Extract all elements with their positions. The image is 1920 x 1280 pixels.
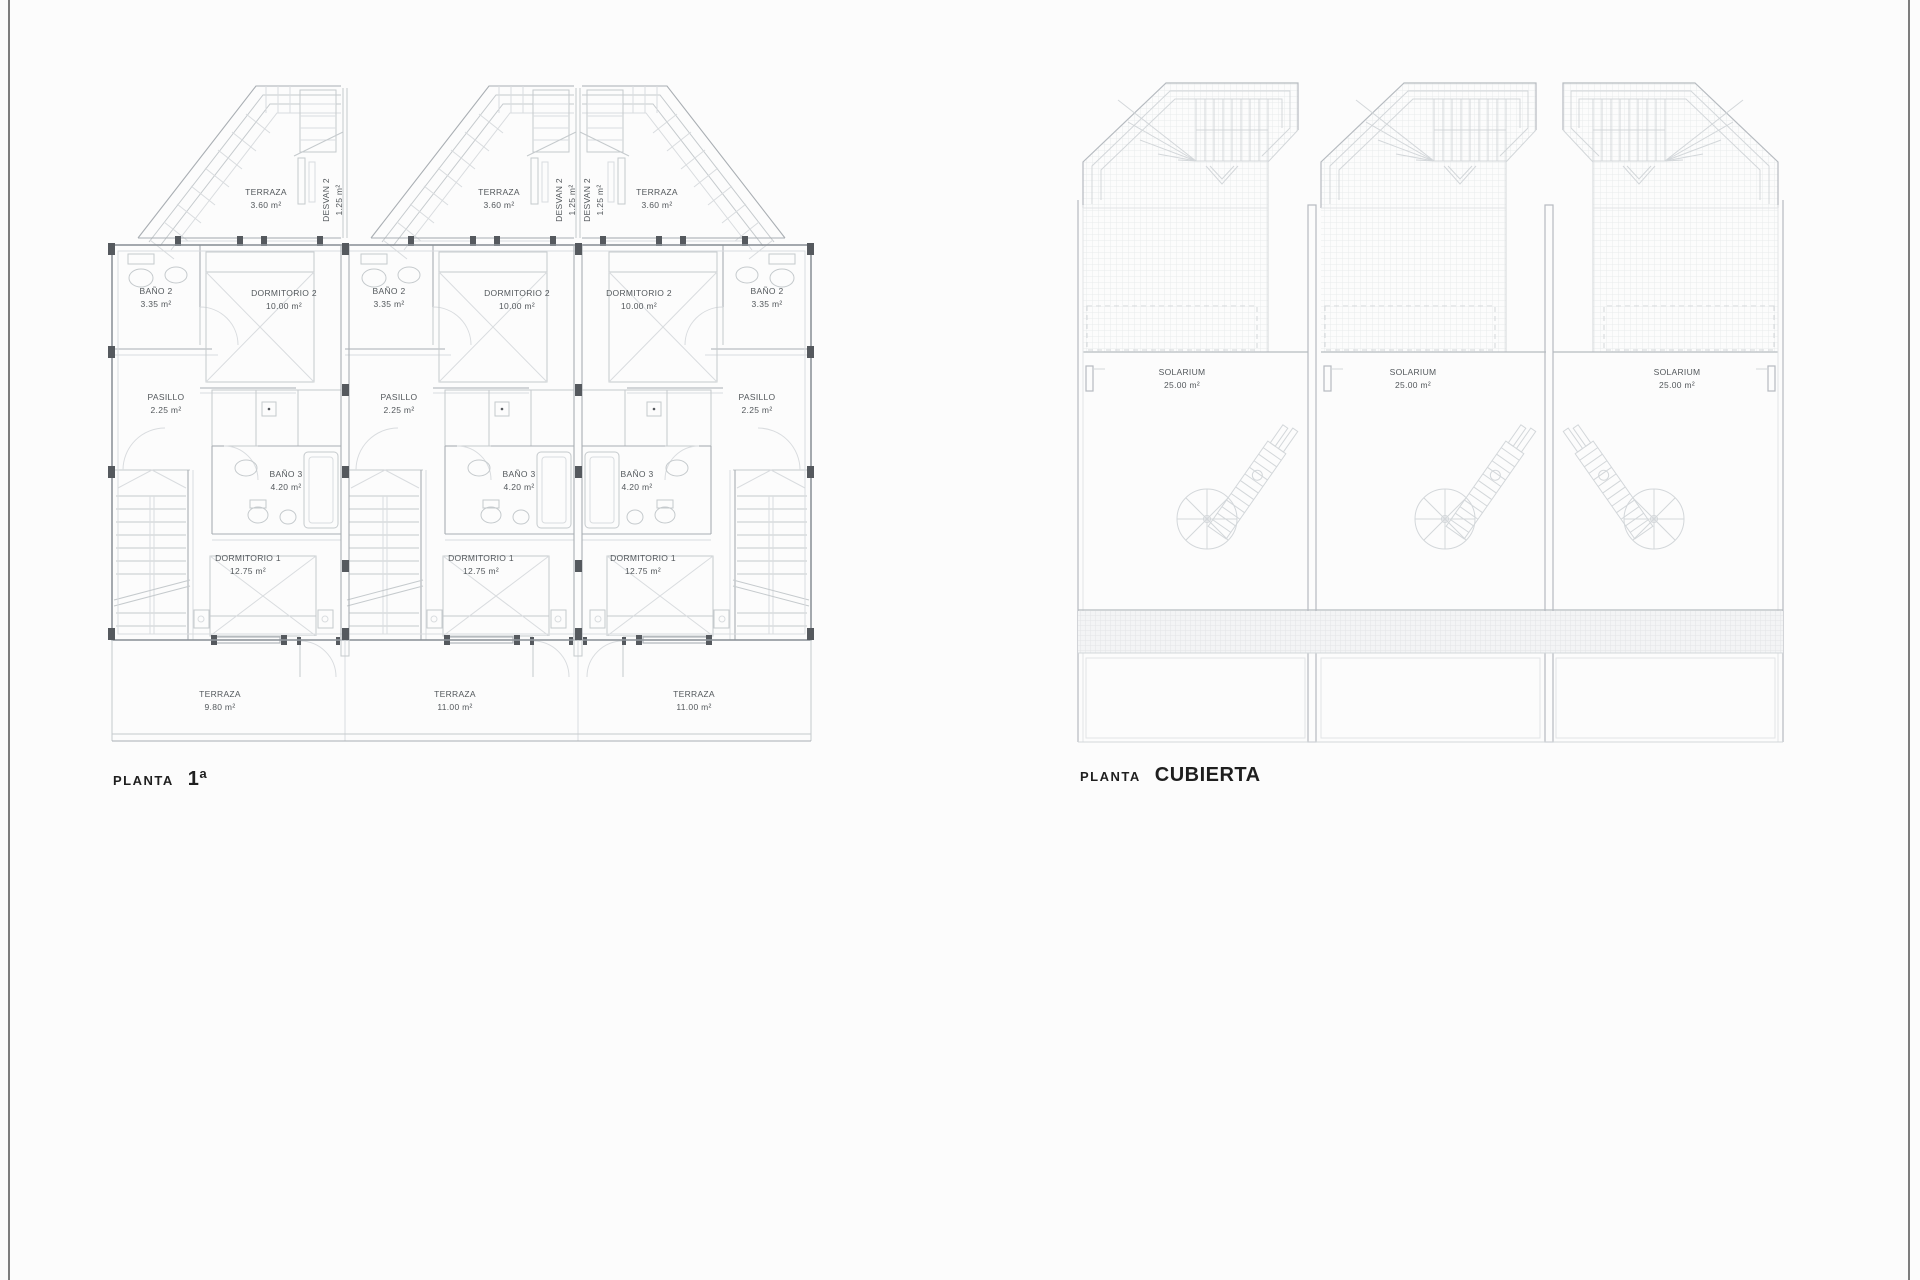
room-area: 11.00 m² (673, 701, 715, 714)
room-area: 3.35 m² (751, 298, 784, 311)
room-name: TERRAZA (199, 688, 241, 701)
room-name: TERRAZA (636, 186, 678, 199)
room-name: BAÑO 2 (373, 285, 406, 298)
room-area: 4.20 m² (270, 481, 303, 494)
room-area: 3.35 m² (140, 298, 173, 311)
label-unit2-bano2: BAÑO 2 3.35 m² (373, 285, 406, 311)
room-name: DESVAN 2 (320, 178, 333, 222)
plan2-title-prefix: PLANTA (1080, 769, 1141, 784)
room-area: 1.25 m² (594, 178, 607, 222)
room-area: 10.00 m² (606, 300, 672, 313)
label-roof-unit2-solarium: SOLARIUM 25.00 m² (1390, 366, 1437, 392)
label-unit2-pasillo: PASILLO 2.25 m² (381, 391, 418, 417)
label-roof-unit1-solarium: SOLARIUM 25.00 m² (1159, 366, 1206, 392)
label-unit3-bano3: BAÑO 3 4.20 m² (621, 468, 654, 494)
room-area: 1.25 m² (333, 178, 346, 222)
room-name: SOLARIUM (1654, 366, 1701, 379)
label-unit2-terraza: TERRAZA 11.00 m² (434, 688, 476, 714)
room-area: 4.20 m² (621, 481, 654, 494)
room-name: PASILLO (148, 391, 185, 404)
room-name: TERRAZA (434, 688, 476, 701)
room-name: BAÑO 3 (503, 468, 536, 481)
label-unit1-bano3: BAÑO 3 4.20 m² (270, 468, 303, 494)
floorplan-linework (0, 0, 1920, 1280)
label-roof-unit3-solarium: SOLARIUM 25.00 m² (1654, 366, 1701, 392)
room-name: BAÑO 3 (270, 468, 303, 481)
label-unit3-terraza-attic: TERRAZA 3.60 m² (636, 186, 678, 212)
room-area: 3.60 m² (478, 199, 520, 212)
label-unit1-terraza: TERRAZA 9.80 m² (199, 688, 241, 714)
room-name: DESVAN 2 (581, 178, 594, 222)
label-unit2-terraza-attic: TERRAZA 3.60 m² (478, 186, 520, 212)
room-area: 12.75 m² (448, 565, 514, 578)
plan1-title-prefix: PLANTA (113, 773, 174, 788)
room-name: TERRAZA (478, 186, 520, 199)
room-name: PASILLO (381, 391, 418, 404)
room-name: PASILLO (739, 391, 776, 404)
room-name: DORMITORIO 2 (606, 287, 672, 300)
room-area: 25.00 m² (1654, 379, 1701, 392)
room-name: DORMITORIO 2 (251, 287, 317, 300)
room-area: 1.25 m² (566, 178, 579, 222)
room-area: 2.25 m² (148, 404, 185, 417)
label-unit3-terraza: TERRAZA 11.00 m² (673, 688, 715, 714)
plan2-title: PLANTA CUBIERTA (1080, 764, 1261, 787)
label-unit1-dormitorio2: DORMITORIO 2 10.00 m² (251, 287, 317, 313)
room-name: DESVAN 2 (553, 178, 566, 222)
room-area: 25.00 m² (1159, 379, 1206, 392)
room-name: BAÑO 2 (140, 285, 173, 298)
plan1-units (112, 86, 811, 677)
room-area: 25.00 m² (1390, 379, 1437, 392)
room-area: 2.25 m² (739, 404, 776, 417)
room-area: 11.00 m² (434, 701, 476, 714)
label-unit3-bano2: BAÑO 2 3.35 m² (751, 285, 784, 311)
room-area: 12.75 m² (215, 565, 281, 578)
plan1-title-value: 1ª (188, 768, 208, 791)
room-area: 3.35 m² (373, 298, 406, 311)
room-area: 9.80 m² (199, 701, 241, 714)
label-unit1-pasillo: PASILLO 2.25 m² (148, 391, 185, 417)
room-area: 4.20 m² (503, 481, 536, 494)
label-unit3-dormitorio1: DORMITORIO 1 12.75 m² (610, 552, 676, 578)
plan2-units (1083, 83, 1778, 549)
room-area: 3.60 m² (245, 199, 287, 212)
room-name: TERRAZA (245, 186, 287, 199)
label-unit2-dormitorio1: DORMITORIO 1 12.75 m² (448, 552, 514, 578)
room-name: DORMITORIO 1 (610, 552, 676, 565)
room-area: 10.00 m² (484, 300, 550, 313)
room-name: DORMITORIO 2 (484, 287, 550, 300)
room-area: 12.75 m² (610, 565, 676, 578)
label-unit3-desvan: DESVAN 2 1.25 m² (581, 178, 607, 222)
room-name: DORMITORIO 1 (448, 552, 514, 565)
plan2-title-value: CUBIERTA (1155, 764, 1261, 787)
room-area: 3.60 m² (636, 199, 678, 212)
room-name: SOLARIUM (1159, 366, 1206, 379)
label-unit3-dormitorio2: DORMITORIO 2 10.00 m² (606, 287, 672, 313)
label-unit2-dormitorio2: DORMITORIO 2 10.00 m² (484, 287, 550, 313)
label-unit1-bano2: BAÑO 2 3.35 m² (140, 285, 173, 311)
room-area: 10.00 m² (251, 300, 317, 313)
room-name: DORMITORIO 1 (215, 552, 281, 565)
label-unit3-pasillo: PASILLO 2.25 m² (739, 391, 776, 417)
label-unit1-desvan: DESVAN 2 1.25 m² (320, 178, 346, 222)
drawing-page: TERRAZA 3.60 m² DESVAN 2 1.25 m² BAÑO 2 … (0, 0, 1920, 1280)
room-area: 2.25 m² (381, 404, 418, 417)
label-unit1-dormitorio1: DORMITORIO 1 12.75 m² (215, 552, 281, 578)
room-name: TERRAZA (673, 688, 715, 701)
label-unit1-terraza-attic: TERRAZA 3.60 m² (245, 186, 287, 212)
plan1-title: PLANTA 1ª (113, 768, 207, 791)
label-unit2-desvan: DESVAN 2 1.25 m² (553, 178, 579, 222)
room-name: BAÑO 2 (751, 285, 784, 298)
label-unit2-bano3: BAÑO 3 4.20 m² (503, 468, 536, 494)
room-name: SOLARIUM (1390, 366, 1437, 379)
room-name: BAÑO 3 (621, 468, 654, 481)
